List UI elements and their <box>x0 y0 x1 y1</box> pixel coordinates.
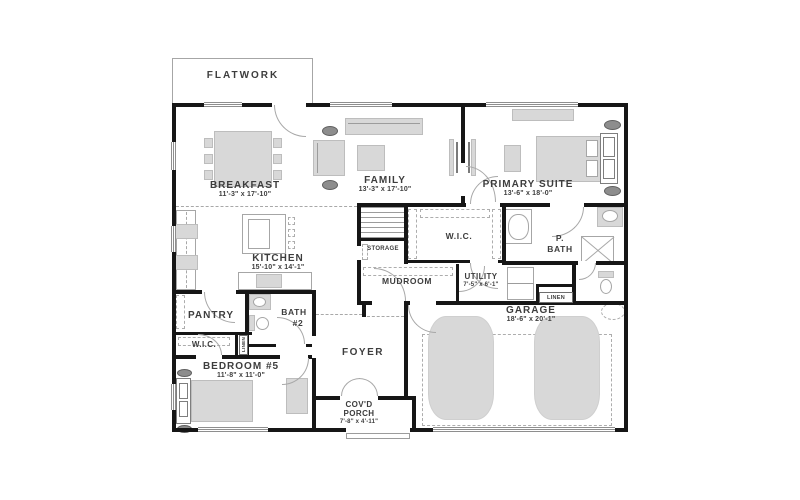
table-lamp <box>322 180 338 190</box>
room-dims-bedroom5: 11'-8" x 11'-0" <box>217 372 265 379</box>
dining-chair <box>204 154 213 164</box>
dining-chair <box>273 154 282 164</box>
dining-chair <box>273 170 282 180</box>
flatwork-patio-outline <box>172 58 313 105</box>
headboard-panel <box>603 137 615 157</box>
room-label-utility: UTILITY <box>464 272 497 281</box>
door-opening <box>312 336 316 358</box>
vanity-sink <box>253 297 266 307</box>
wall-segment <box>502 203 506 264</box>
vanity-sink <box>602 210 618 222</box>
porch-step <box>346 433 410 434</box>
room-dims-porch: 7'-8" x 4'-11" <box>340 419 378 425</box>
room-dims-utility: 7'-5" x 6'-1" <box>463 282 498 288</box>
wall-segment <box>404 203 408 264</box>
room-label-linen-hall: LINEN <box>547 295 565 301</box>
appliance <box>174 255 198 270</box>
room-label-breakfast: BREAKFAST <box>210 180 280 191</box>
nightstand-lamp <box>604 120 621 130</box>
table-lamp <box>322 126 338 136</box>
room-dims-family: 13'-3" x 17'-10" <box>359 186 412 193</box>
wall-segment <box>536 284 575 287</box>
door-opening <box>461 163 465 196</box>
bedroom-bench <box>504 145 521 172</box>
room-label-porch-line2: PORCH <box>344 409 375 418</box>
bar-stool <box>288 229 295 237</box>
wall-segment <box>404 301 408 396</box>
dashed-line <box>176 206 357 207</box>
headboard-panel <box>603 159 615 179</box>
wall-segment <box>362 301 366 317</box>
door-opening <box>276 344 306 347</box>
bathtub-basin <box>508 214 529 240</box>
room-label-wic-bedroom5: W.I.C. <box>192 340 216 349</box>
appliance <box>174 224 198 239</box>
tv-console <box>449 139 454 176</box>
bed-pillow <box>586 160 598 177</box>
bar-stool <box>288 241 295 249</box>
bed <box>191 380 253 422</box>
window <box>204 102 242 107</box>
room-label-porch-line1: COV'D <box>345 400 372 409</box>
floor-plan: FLATWORK BREAKFAST 11'-3" x 17'-10" FAMI… <box>0 0 800 500</box>
breakfast-table <box>214 131 272 187</box>
window <box>171 142 176 170</box>
room-dims-kitchen: 15'-10" x 14'-1" <box>252 264 305 271</box>
room-label-bath2-line1: BATH <box>281 307 306 317</box>
window <box>171 226 176 252</box>
coffee-table <box>357 145 385 171</box>
toilet-bowl <box>600 279 612 294</box>
nightstand-lamp <box>604 186 621 196</box>
door-opening <box>372 301 404 305</box>
dining-chair <box>204 170 213 180</box>
linen-label-box: LINEN <box>539 292 573 303</box>
wall-segment <box>357 238 408 241</box>
room-label-foyer: FOYER <box>342 347 384 358</box>
window <box>486 102 578 107</box>
wic-shelves <box>420 209 490 218</box>
dining-chair <box>273 138 282 148</box>
dining-chair <box>204 138 213 148</box>
toilet-bowl <box>256 317 269 330</box>
porch-step-side <box>346 433 347 439</box>
porch-step-side <box>409 433 410 439</box>
nightstand-lamp <box>177 369 192 377</box>
window <box>330 102 392 107</box>
door-opening <box>196 355 222 359</box>
stairs <box>361 207 404 238</box>
wall-segment <box>502 261 628 265</box>
door-opening <box>357 246 361 260</box>
armchair-back-line <box>317 143 318 173</box>
washer-dryer-divider <box>507 283 534 284</box>
room-label-bath2-line2: #2 <box>293 318 304 328</box>
wic-shelves <box>408 209 417 259</box>
wic-shelves <box>492 209 501 259</box>
dresser <box>512 109 574 121</box>
porch-step <box>346 438 410 439</box>
toilet-tank <box>598 271 614 278</box>
dashed-line <box>316 314 362 315</box>
room-dims-garage: 18'-6" x 20'-1" <box>507 316 556 323</box>
door-opening <box>346 428 410 432</box>
wall-segment <box>172 290 316 294</box>
room-label-bedroom5: BEDROOM #5 <box>203 361 279 372</box>
family-sofa <box>345 118 423 135</box>
wall-segment <box>624 103 628 432</box>
wall-segment <box>312 290 316 432</box>
room-dims-primary-suite: 13'-6" x 18'-0" <box>504 190 553 197</box>
window <box>198 427 268 432</box>
headboard-panel <box>179 401 188 417</box>
headboard-panel <box>179 383 188 399</box>
room-label-flatwork: FLATWORK <box>207 70 279 81</box>
dashed-line <box>367 316 404 317</box>
window <box>171 384 176 410</box>
room-label-linen-bedroom5: LINEN <box>241 338 246 353</box>
bed-pillow <box>586 140 598 157</box>
room-label-kitchen: KITCHEN <box>252 253 303 264</box>
range <box>256 274 282 288</box>
door-arc <box>274 105 306 137</box>
shower <box>581 236 614 264</box>
room-label-family: FAMILY <box>364 175 406 186</box>
garage-car <box>534 316 600 420</box>
room-label-p-bath-line1: P. <box>556 233 564 243</box>
room-label-mudroom: MUDROOM <box>382 276 432 286</box>
toilet-tank <box>249 315 255 331</box>
water-heater <box>601 303 625 320</box>
tv-screen <box>456 142 458 173</box>
room-label-storage: STORAGE <box>367 246 399 252</box>
room-dims-breakfast: 11'-3" x 17'-10" <box>219 191 271 198</box>
room-label-pantry: PANTRY <box>188 310 234 321</box>
island-sink <box>248 219 270 249</box>
front-door-arc <box>341 378 360 396</box>
wall-segment <box>412 396 416 432</box>
wall-segment <box>235 332 238 358</box>
room-label-garage: GARAGE <box>506 305 556 316</box>
front-door-arc <box>359 378 378 396</box>
room-label-primary-suite: PRIMARY SUITE <box>483 179 574 190</box>
door-arc <box>408 305 436 333</box>
garage-car <box>428 316 494 420</box>
bar-stool <box>288 217 295 225</box>
room-label-p-bath-line2: BATH <box>547 244 572 254</box>
room-label-wic-primary: W.I.C. <box>446 231 473 241</box>
garage-door <box>433 427 615 432</box>
pantry-shelves <box>176 295 185 329</box>
sofa-back-line <box>348 123 420 124</box>
door-arc <box>579 263 596 280</box>
linen-label-box: LINEN <box>239 335 248 355</box>
